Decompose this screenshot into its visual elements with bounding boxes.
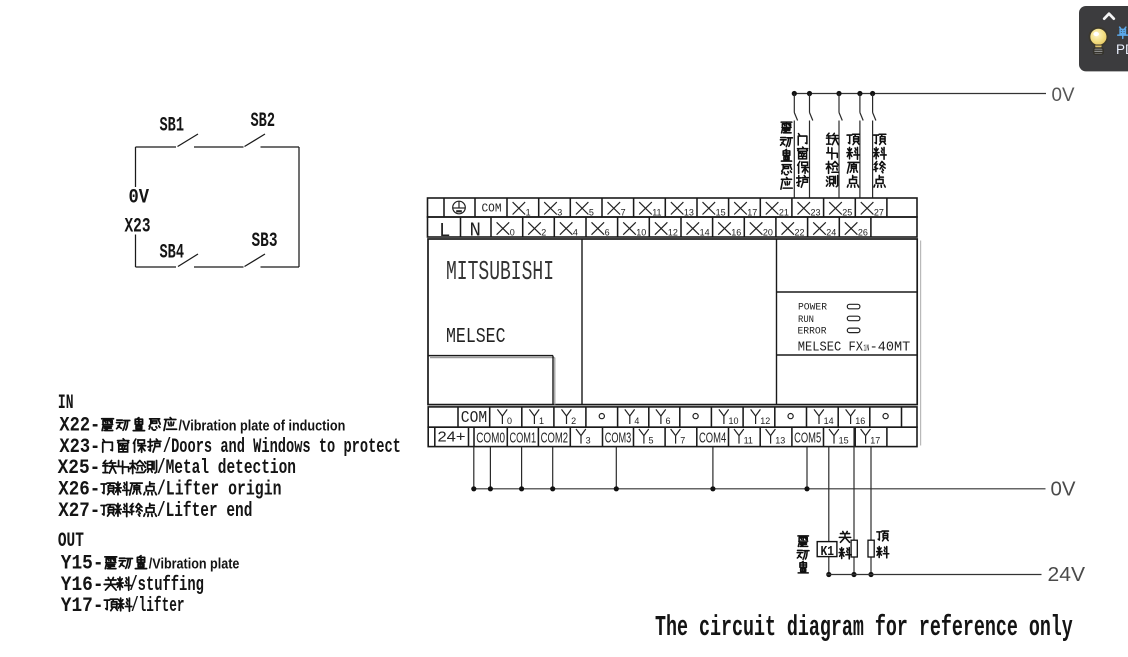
svg-text:POWER: POWER <box>798 303 827 314</box>
svg-text:MITSUBISHI: MITSUBISHI <box>446 258 554 288</box>
svg-text:COM3: COM3 <box>605 430 632 447</box>
svg-text:16: 16 <box>855 416 865 426</box>
svg-text:/Lifter end: /Lifter end <box>157 500 253 523</box>
svg-text:5: 5 <box>589 207 594 217</box>
svg-text:0: 0 <box>507 416 512 426</box>
svg-text:X26-: X26- <box>58 479 100 502</box>
svg-text:17: 17 <box>870 435 880 445</box>
svg-text:Y16-: Y16- <box>61 574 104 597</box>
svg-text:COM2: COM2 <box>541 430 568 447</box>
svg-text:15: 15 <box>839 435 849 445</box>
svg-text:SB2: SB2 <box>251 110 276 133</box>
svg-text:0V: 0V <box>129 187 150 210</box>
svg-text:6: 6 <box>605 228 610 238</box>
svg-text:MELSEC FX: MELSEC FX <box>798 340 864 356</box>
svg-text:10: 10 <box>729 416 739 426</box>
svg-text:7: 7 <box>621 207 626 217</box>
svg-text:PD: PD <box>1116 42 1128 57</box>
svg-text:SB4: SB4 <box>160 242 185 265</box>
svg-text:SB3: SB3 <box>252 230 278 253</box>
svg-text:X22-: X22- <box>59 414 100 437</box>
svg-text:/Lifter origin: /Lifter origin <box>157 479 282 502</box>
svg-text:/Metal detection: /Metal detection <box>157 457 296 480</box>
svg-text:22: 22 <box>795 228 805 238</box>
svg-text:1N: 1N <box>863 344 869 354</box>
svg-text:12: 12 <box>668 228 678 238</box>
svg-text:-40MT: -40MT <box>870 340 911 356</box>
svg-text:0V: 0V <box>1051 479 1077 501</box>
svg-text:15: 15 <box>716 207 726 217</box>
svg-text:1: 1 <box>526 207 531 217</box>
svg-text:20: 20 <box>763 228 773 238</box>
svg-text:X25-: X25- <box>58 457 101 480</box>
svg-text:K1: K1 <box>821 544 835 560</box>
svg-text:13: 13 <box>775 435 785 445</box>
svg-text:10: 10 <box>636 228 646 238</box>
svg-text:X27-: X27- <box>58 500 100 523</box>
svg-text:0: 0 <box>510 228 515 238</box>
svg-text:7: 7 <box>680 435 685 445</box>
svg-text:ERROR: ERROR <box>798 327 827 338</box>
svg-text:4: 4 <box>634 416 639 426</box>
svg-text:24: 24 <box>826 228 836 238</box>
svg-text:RUN: RUN <box>798 315 814 326</box>
svg-text:The circuit diagram for refere: The circuit diagram for reference only <box>655 611 1073 644</box>
svg-text:14: 14 <box>700 228 710 238</box>
svg-text:4: 4 <box>573 228 578 238</box>
svg-text:3: 3 <box>557 207 562 217</box>
svg-text:25: 25 <box>842 207 852 217</box>
svg-text:COM: COM <box>461 409 487 428</box>
svg-text:11: 11 <box>652 207 661 217</box>
svg-text:2: 2 <box>571 416 576 426</box>
svg-text:Y15-: Y15- <box>61 552 104 575</box>
svg-text:/Doors and Windows to protect: /Doors and Windows to protect <box>163 436 401 459</box>
svg-text:COM1: COM1 <box>510 430 537 447</box>
svg-text:23: 23 <box>811 207 821 217</box>
svg-text:COM: COM <box>482 203 502 216</box>
svg-text:/Vibration plate: /Vibration plate <box>149 555 240 572</box>
svg-text:COM0: COM0 <box>476 430 505 447</box>
svg-text:11: 11 <box>744 435 753 445</box>
svg-text:3: 3 <box>586 435 591 445</box>
svg-text:X23: X23 <box>125 216 151 239</box>
svg-text:17: 17 <box>747 207 757 217</box>
svg-text:1: 1 <box>539 416 544 426</box>
svg-text:/Vibration plate of induction: /Vibration plate of induction <box>179 417 346 434</box>
svg-text:COM5: COM5 <box>794 430 821 447</box>
svg-text:14: 14 <box>824 416 834 426</box>
svg-text:27: 27 <box>874 207 884 217</box>
svg-text:0V: 0V <box>1052 85 1075 106</box>
svg-text:24+: 24+ <box>438 429 466 446</box>
svg-text:16: 16 <box>731 228 741 238</box>
svg-text:X23-: X23- <box>59 436 100 459</box>
svg-text:26: 26 <box>858 228 868 238</box>
svg-text:Y17-: Y17- <box>61 595 104 618</box>
svg-text:SB1: SB1 <box>160 115 185 138</box>
svg-text:/lifter: /lifter <box>131 595 185 618</box>
svg-text:12: 12 <box>760 416 770 426</box>
svg-text:OUT: OUT <box>58 530 84 553</box>
svg-text:21: 21 <box>779 207 789 217</box>
svg-text:COM4: COM4 <box>699 430 726 447</box>
svg-text:6: 6 <box>666 416 671 426</box>
svg-text:MELSEC: MELSEC <box>446 326 506 349</box>
svg-text:24V: 24V <box>1048 564 1086 586</box>
svg-text:IN: IN <box>58 392 74 415</box>
svg-text:2: 2 <box>541 228 546 238</box>
svg-text:13: 13 <box>684 207 694 217</box>
svg-text:/stuffing: /stuffing <box>129 574 204 597</box>
svg-text:5: 5 <box>649 435 654 445</box>
